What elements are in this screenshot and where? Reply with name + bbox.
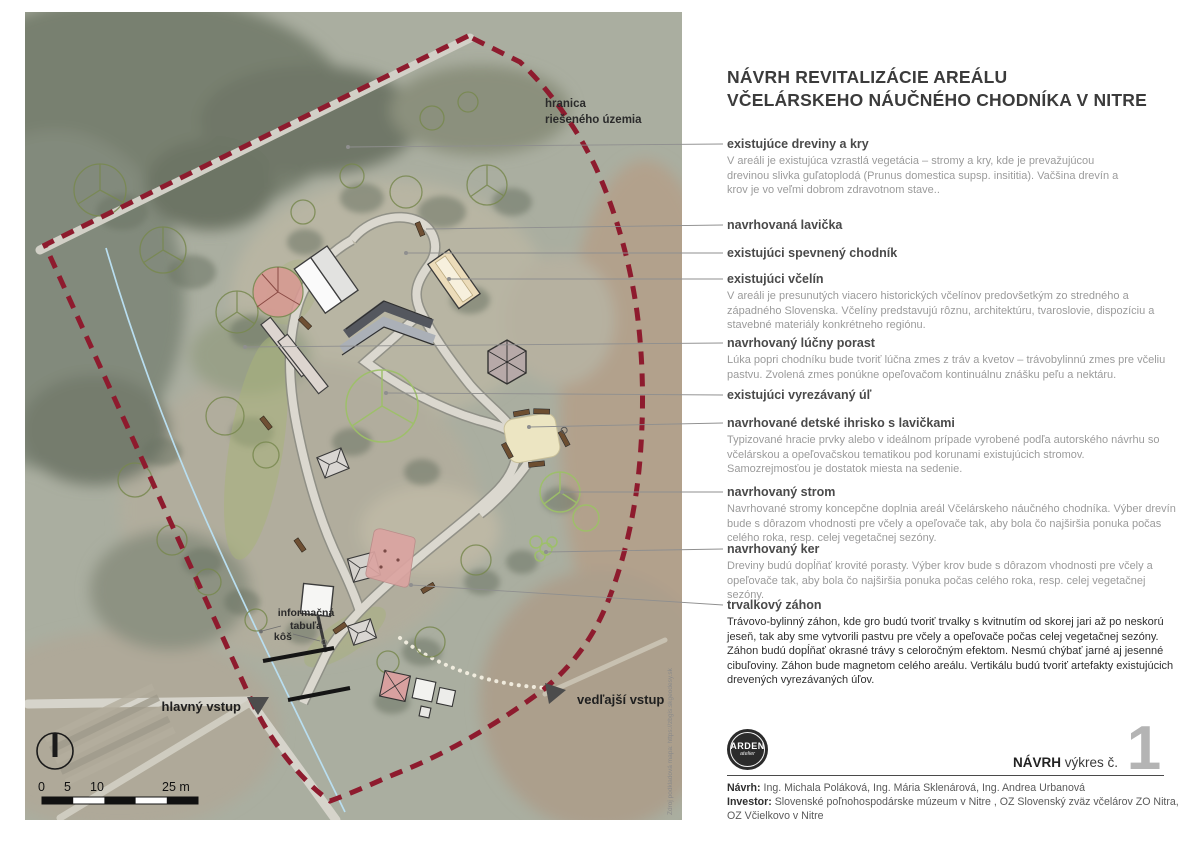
annotation-heading: navrhované detské ihrisko s lavičkami [727,416,1185,430]
svg-text:25 m: 25 m [162,780,190,794]
annotation-body: Lúka popri chodníku bude tvoriť lúčna zm… [727,353,1177,382]
svg-text:riešeného územia: riešeného územia [545,114,642,126]
annotation-body: Dreviny budú dopĺňať krovité porasty. Vý… [727,559,1182,603]
annotation-heading: navrhovaný ker [727,542,1185,556]
info-board-label: informačná [278,607,335,619]
drawing-stage-label: NÁVRH výkres č. [900,755,1118,770]
annotation-playground: navrhované detské ihrisko s lavičkami Ty… [727,416,1185,477]
annotation-meadow: navrhovaný lúčny porast Lúka popri chodn… [727,336,1185,382]
annotation-body: V areáli je existujúca vzrastlá vegetáci… [727,154,1129,198]
annotation-heading: navrhovaná lavička [727,218,1185,232]
boundary-label: hranica [545,98,587,110]
annotation-existing-path: existujúci spevnený chodník [727,246,1185,260]
annotation-existing-beehouse: existujúci včelín V areáli je presunutýc… [727,272,1185,333]
svg-text:5: 5 [64,780,71,794]
credit-investor: Investor: Slovenské poľnohospodárske múz… [727,795,1187,823]
annotation-heading: existujúci spevnený chodník [727,246,1185,260]
annotation-heading: navrhovaný strom [727,485,1185,499]
footer-rule [727,775,1164,776]
annotation-proposed-shrub: navrhovaný ker Dreviny budú dopĺňať krov… [727,542,1185,603]
svg-text:tabuľa: tabuľa [290,620,322,632]
svg-text:0: 0 [38,780,45,794]
annotation-body: V areáli je presunutých viacero historic… [727,289,1185,333]
annotation-body: Typizované hracie prvky alebo v ideálnom… [727,433,1167,477]
annotation-heading: navrhovaný lúčny porast [727,336,1185,350]
main-entrance-label: hlavný vstup [162,699,242,714]
credit-design: Návrh: Ing. Michala Poláková, Ing. Mária… [727,781,1187,795]
arden-atelier-logo: ARDEN atelier [727,729,768,770]
map-source-note: Zdroj podkladová mapa: https://zbgis.skg… [667,667,674,815]
annotation-carved-hive: existujúci vyrezávaný úľ [727,388,1185,402]
annotation-body: Trávovo-bylinný záhon, kde gro budú tvor… [727,615,1185,688]
perennial-bed [366,529,415,587]
annotation-perennial-bed: trvalkový záhon Trávovo-bylinný záhon, k… [727,598,1185,688]
side-entrance-label: vedľajší vstup [577,692,664,707]
drawing-number: 1 [1120,720,1168,778]
page-title: NÁVRH REVITALIZÁCIE AREÁLU VČELÁRSKEHO N… [727,66,1187,112]
plan-sheet: hranica riešeného územia informačná tabu… [0,0,1190,841]
annotation-heading: existujúce dreviny a kry [727,137,1185,151]
annotation-proposed-bench: navrhovaná lavička [727,218,1185,232]
annotation-body: Navrhované stromy koncepčne doplnia areá… [727,502,1182,546]
svg-text:10: 10 [90,780,104,794]
annotation-heading: trvalkový záhon [727,598,1185,612]
annotation-heading: existujúci vyrezávaný úľ [727,388,1185,402]
pink-tree [253,267,303,317]
annotation-existing-trees: existujúce dreviny a kry V areáli je exi… [727,137,1185,198]
logo-ring [730,732,765,767]
annotation-heading: existujúci včelín [727,272,1185,286]
bin-label: kôš [274,631,292,643]
annotation-proposed-tree: navrhovaný strom Navrhované stromy konce… [727,485,1185,546]
credits: Návrh: Ing. Michala Poláková, Ing. Mária… [727,781,1187,823]
